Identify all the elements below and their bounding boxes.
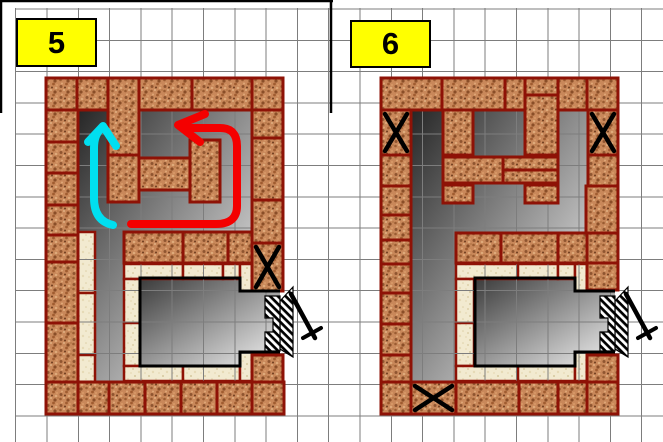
clay-brick — [587, 233, 618, 263]
clay-brick — [443, 185, 473, 203]
firebrick — [78, 355, 95, 382]
clay-brick — [503, 157, 558, 170]
clay-brick — [587, 263, 618, 290]
clay-brick — [252, 200, 283, 243]
firebrick — [124, 366, 183, 381]
course-number-label-5: 5 — [16, 18, 97, 67]
clay-brick — [519, 382, 558, 414]
firebrick — [456, 366, 518, 381]
clay-brick — [183, 232, 228, 263]
clay-brick — [505, 78, 525, 110]
clay-brick — [586, 186, 618, 233]
clay-brick — [46, 382, 78, 414]
firebrick — [124, 323, 140, 366]
firebrick — [456, 323, 474, 366]
clay-brick — [587, 355, 618, 382]
clay-brick — [381, 382, 411, 414]
clay-brick — [558, 233, 587, 263]
clay-brick — [77, 78, 108, 110]
clay-brick — [46, 78, 77, 110]
course-number-label-6: 6 — [350, 20, 431, 68]
firebrick — [183, 366, 240, 381]
clay-brick — [381, 215, 411, 240]
clay-brick — [443, 110, 473, 155]
clay-brick — [381, 293, 411, 324]
clay-brick — [217, 382, 252, 414]
firebrick — [575, 264, 587, 291]
clay-brick — [78, 382, 109, 414]
clay-brick — [46, 205, 78, 235]
clay-brick — [525, 95, 558, 155]
clay-brick — [108, 155, 139, 202]
clay-brick — [443, 157, 503, 183]
stove-course-diagram: 56 — [0, 0, 663, 442]
clay-brick — [381, 186, 411, 215]
clay-brick — [46, 142, 78, 173]
clay-brick — [192, 78, 252, 110]
clay-brick — [442, 78, 505, 110]
clay-brick — [252, 355, 283, 382]
clay-brick — [587, 382, 618, 414]
clay-brick — [525, 78, 558, 95]
clay-brick — [456, 233, 501, 263]
clay-brick — [46, 323, 78, 382]
clay-brick — [381, 78, 442, 110]
firebrick — [78, 232, 95, 293]
clay-brick — [46, 235, 78, 262]
clay-brick — [139, 78, 192, 110]
clay-brick — [145, 382, 181, 414]
clay-brick — [501, 233, 559, 263]
clay-brick — [139, 158, 190, 190]
firebrick — [240, 352, 252, 381]
clay-brick — [252, 110, 283, 138]
clay-brick — [228, 232, 252, 263]
clay-brick — [558, 382, 587, 414]
clay-brick — [503, 170, 558, 183]
clay-brick — [124, 232, 183, 263]
clay-brick — [381, 264, 411, 293]
firebrick — [456, 279, 474, 323]
clay-brick — [381, 240, 411, 264]
diagram-canvas — [0, 0, 663, 442]
clay-brick — [46, 173, 78, 205]
clay-brick — [456, 382, 519, 414]
clay-brick — [46, 110, 78, 142]
firebrick — [124, 279, 140, 323]
clay-brick — [525, 185, 558, 203]
firebrick — [78, 293, 95, 355]
clay-brick — [109, 382, 145, 414]
clay-brick — [587, 78, 618, 110]
firebrick — [575, 352, 587, 381]
clay-brick — [252, 138, 283, 200]
firebrick — [518, 366, 575, 381]
clay-brick — [558, 78, 587, 110]
clay-brick — [252, 78, 283, 110]
clay-brick — [381, 155, 411, 186]
clay-brick — [252, 382, 284, 414]
clay-brick — [588, 155, 618, 186]
clay-brick — [181, 382, 217, 414]
firebrick — [240, 264, 252, 291]
clay-brick — [381, 355, 411, 382]
clay-brick — [190, 140, 220, 202]
clay-brick — [381, 324, 411, 355]
clay-brick — [46, 262, 78, 323]
